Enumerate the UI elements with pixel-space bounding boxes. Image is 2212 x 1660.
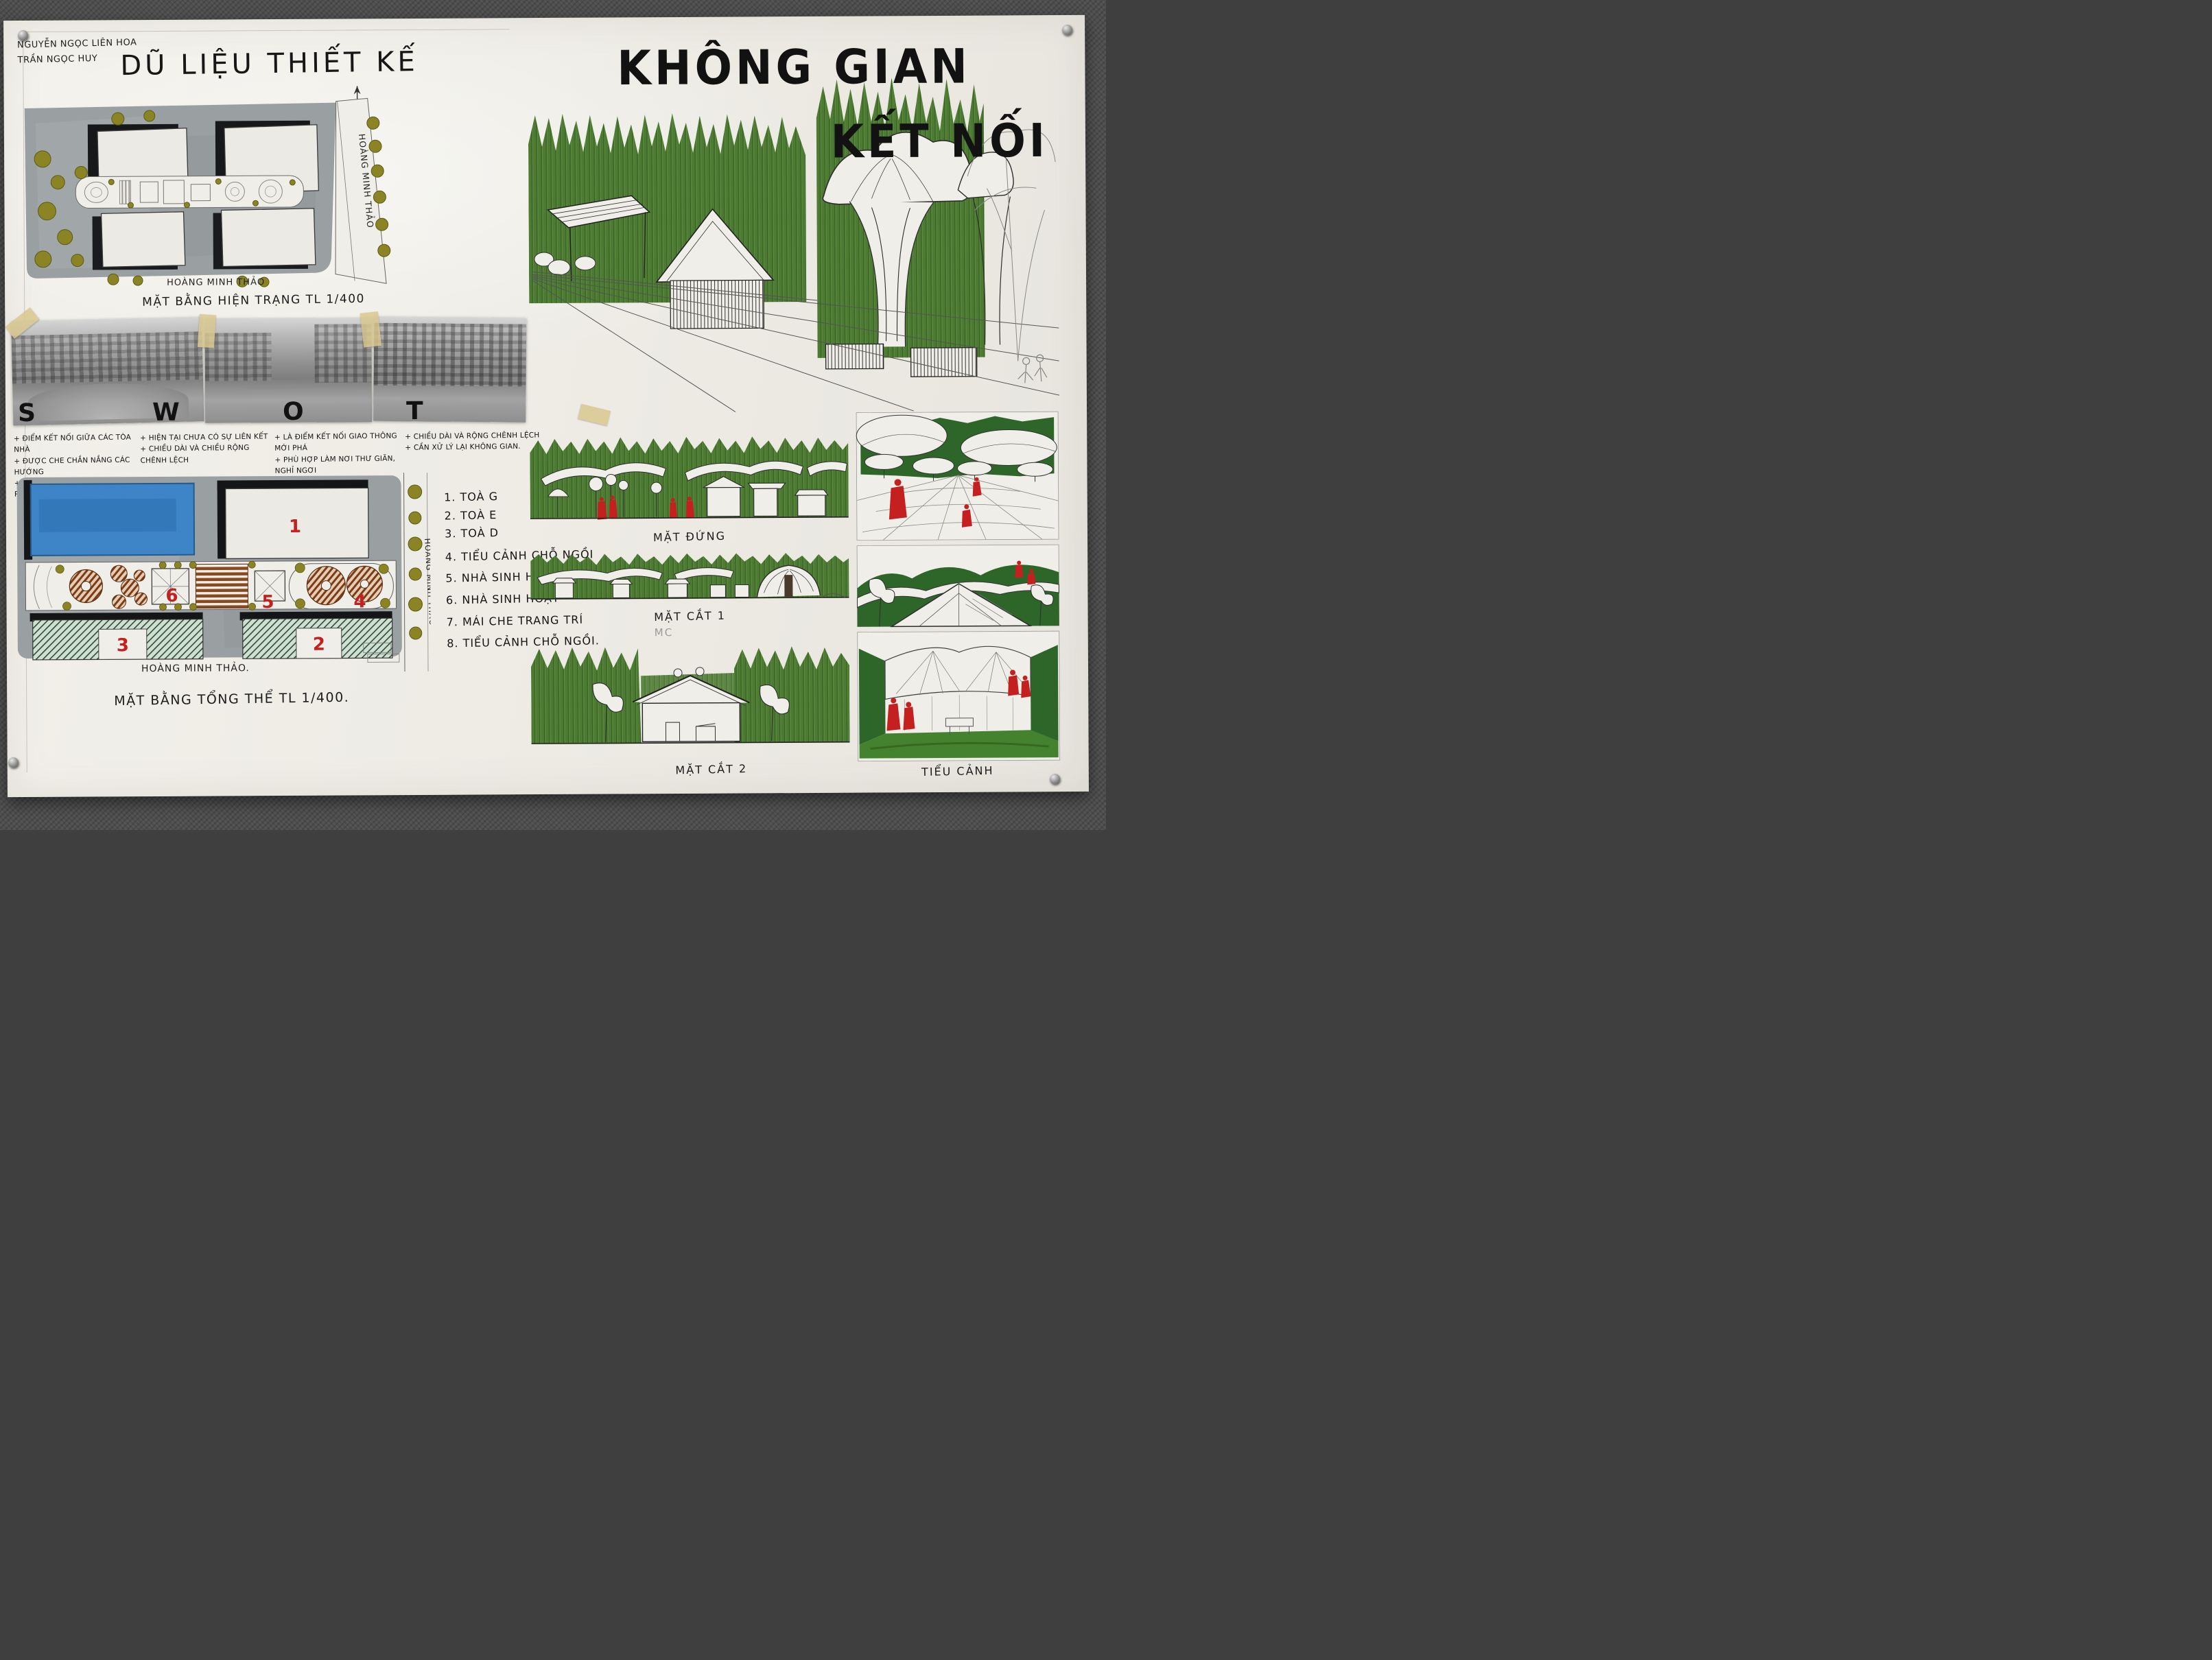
photo-building: [12, 331, 204, 383]
plan-number-5: 5: [261, 592, 274, 613]
swot-letter-o: O: [283, 397, 405, 426]
plan-number-4: 4: [353, 591, 366, 612]
section1-drawing: [530, 549, 849, 610]
street-label-right: HOÀNG MINH THẢO: [423, 538, 431, 626]
master-street-label-bottom: HOÀNG MINH THẢO.: [141, 663, 250, 674]
main-title-line1: KHÔNG GIAN: [617, 40, 971, 97]
section2-drawing: [531, 638, 850, 764]
swot-letter-w: W: [152, 398, 273, 427]
swot-s-item: + ĐIỂM KẾT NỐI GIỮA CÁC TÒA NHÀ: [14, 431, 140, 455]
swot-o-item: + LÀ ĐIỂM KẾT NỐI GIAO THÔNG MỚI PHÁ: [274, 430, 405, 454]
author-1: NGUYỄN NGỌC LIÊN HOA: [17, 36, 137, 54]
vignette-label: TIỂU CẢNH: [899, 763, 1016, 779]
swot-w-item: + CHIỀU DÀI VÀ CHIỀU RỘNG CHÊNH LỆCH: [140, 442, 273, 466]
master-plan-caption: MẶT BẰNG TỔNG THỂ TL 1/400.: [114, 690, 349, 709]
master-plan-drawing: 1 6 5: [16, 473, 432, 674]
push-pin: [1062, 25, 1072, 35]
pinboard-wall: NGUYỄN NGỌC LIÊN HOA TRẦN NGỌC HUY DŨ LI…: [0, 0, 1106, 830]
masking-tape: [360, 311, 381, 348]
vignette-tent-interior: [856, 630, 1061, 763]
plan-number-6: 6: [165, 586, 178, 606]
swot-w-item: + HIỆN TẠI CHƯA CÓ SỰ LIÊN KẾT: [140, 431, 273, 444]
elevation-drawing: [530, 432, 849, 530]
pencil-guide-line: [23, 29, 510, 32]
push-pin: [18, 30, 28, 40]
site-plan-caption: MẶT BẰNG HIỆN TRẠNG TL 1/400: [142, 292, 365, 309]
vignette-roof: [856, 543, 1061, 628]
author-names: NGUYỄN NGỌC LIÊN HOA TRẦN NGỌC HUY: [17, 36, 137, 69]
plan-number-1: 1: [289, 517, 301, 537]
presentation-board: NGUYỄN NGỌC LIÊN HOA TRẦN NGỌC HUY DŨ LI…: [3, 15, 1089, 797]
push-pin: [1050, 774, 1060, 784]
plan-number-3: 3: [117, 635, 129, 656]
design-data-title: DŨ LIỆU THIẾT KẾ: [120, 46, 419, 82]
author-2: TRẦN NGỌC HUY: [17, 51, 137, 69]
masking-tape: [198, 314, 216, 348]
photo-walkway: [374, 323, 527, 387]
existing-site-plan-drawing: HOÀNG MINH THẢO: [15, 94, 395, 292]
sketch-people: [1018, 355, 1047, 383]
push-pin: [8, 757, 19, 768]
vignette-plaza: [855, 410, 1060, 542]
site-street-label-bottom: HOÀNG MINH THẢO: [167, 277, 265, 288]
photo-building: [204, 333, 272, 381]
main-title-line2: KẾT NỐI: [831, 113, 1048, 168]
swot-letter-s: S: [18, 399, 140, 427]
plan-number-2: 2: [313, 635, 325, 655]
swot-weaknesses: W + HIỆN TẠI CHƯA CÓ SỰ LIÊN KẾT + CHIỀU…: [140, 398, 274, 466]
section1-note: MC: [655, 626, 674, 639]
